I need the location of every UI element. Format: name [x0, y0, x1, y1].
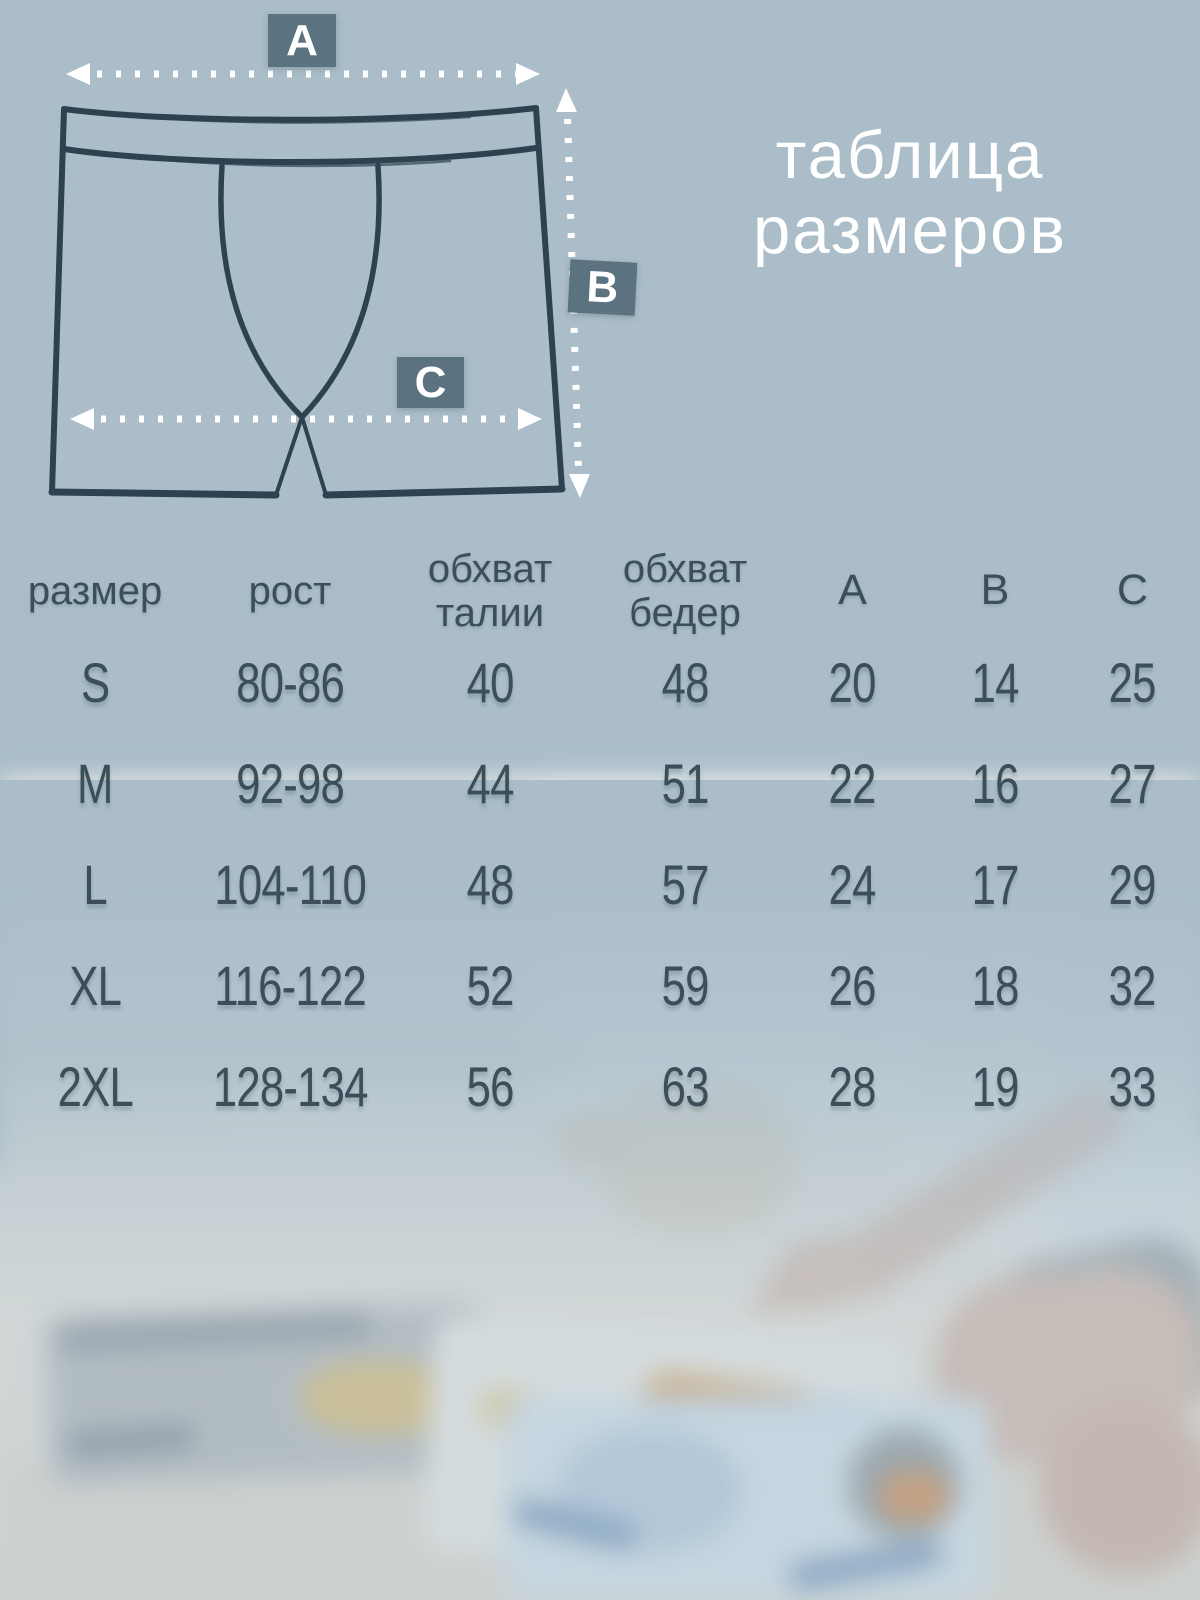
value: 63	[661, 1054, 708, 1119]
row-l-a: 24	[780, 852, 925, 917]
value: 80-86	[236, 650, 344, 715]
row-s-waist: 40	[390, 650, 590, 715]
title-line-1: таблица	[620, 118, 1200, 193]
value: 28	[829, 1054, 876, 1119]
row-m-waist: 44	[390, 751, 590, 816]
value: 59	[661, 953, 708, 1018]
row-l-b: 17	[925, 852, 1065, 917]
size-chart-infographic: A B C таблица размеров размер рост обхва…	[0, 0, 1200, 1600]
value: 92-98	[236, 751, 344, 816]
col-header-height: рост	[190, 569, 390, 613]
value: 116-122	[214, 953, 366, 1018]
col-header-size: размер	[0, 569, 190, 613]
row-m-height: 92-98	[190, 751, 390, 816]
col-header-a: A	[780, 567, 925, 614]
value: 2XL	[57, 1054, 132, 1119]
value: 57	[661, 852, 708, 917]
value: 25	[1109, 650, 1156, 715]
value: M	[77, 751, 113, 816]
value: 18	[971, 953, 1018, 1018]
row-l-hips: 57	[590, 852, 780, 917]
row-2xl-c: 33	[1065, 1054, 1200, 1119]
value: 33	[1109, 1054, 1156, 1119]
row-m-hips: 51	[590, 751, 780, 816]
row-s-b: 14	[925, 650, 1065, 715]
row-xl-waist: 52	[390, 953, 590, 1018]
value: 14	[971, 650, 1018, 715]
dimension-label-a: A	[268, 14, 336, 67]
col-header-waist-line2: талии	[390, 591, 590, 635]
row-s-height: 80-86	[190, 650, 390, 715]
row-m-size: M	[0, 751, 190, 816]
value: 19	[971, 1054, 1018, 1119]
size-table-body: S 80-86 40 48 20 14 25 M 92-98 44 51 22 …	[0, 632, 1200, 1137]
value: 22	[829, 751, 876, 816]
value: 29	[1109, 852, 1156, 917]
col-header-hips: обхват бедер	[590, 547, 780, 635]
garment-outline	[52, 108, 562, 495]
row-xl-b: 18	[925, 953, 1065, 1018]
row-xl-size: XL	[0, 953, 190, 1018]
row-xl-height: 116-122	[190, 953, 390, 1018]
row-l-size: L	[0, 852, 190, 917]
value: 52	[466, 953, 513, 1018]
row-l-c: 29	[1065, 852, 1200, 917]
title-line-2: размеров	[620, 193, 1200, 268]
value: 104-110	[214, 852, 366, 917]
dimension-letter: C	[415, 358, 447, 408]
row-2xl-a: 28	[780, 1054, 925, 1119]
value: 32	[1109, 953, 1156, 1018]
value: 27	[1109, 751, 1156, 816]
value: 24	[829, 852, 876, 917]
row-m-b: 16	[925, 751, 1065, 816]
value: 128-134	[213, 1054, 368, 1119]
dimension-label-c: C	[397, 357, 464, 408]
col-header-b: B	[925, 567, 1065, 614]
value: 48	[466, 852, 513, 917]
row-xl-c: 32	[1065, 953, 1200, 1018]
dimension-letter: A	[286, 16, 318, 66]
value: S	[81, 650, 109, 715]
row-s-hips: 48	[590, 650, 780, 715]
row-2xl-b: 19	[925, 1054, 1065, 1119]
row-2xl-hips: 63	[590, 1054, 780, 1119]
col-header-waist-line1: обхват	[390, 547, 590, 591]
value: 56	[466, 1054, 513, 1119]
value: 16	[971, 751, 1018, 816]
value: 48	[661, 650, 708, 715]
col-header-hips-line2: бедер	[590, 591, 780, 635]
arrow-c	[70, 408, 542, 430]
col-header-waist: обхват талии	[390, 547, 590, 635]
value: 44	[466, 751, 513, 816]
row-2xl-waist: 56	[390, 1054, 590, 1119]
row-s-a: 20	[780, 650, 925, 715]
row-2xl-size: 2XL	[0, 1054, 190, 1119]
value: L	[83, 852, 107, 917]
value: 20	[829, 650, 876, 715]
dimension-letter: B	[585, 262, 619, 314]
row-l-waist: 48	[390, 852, 590, 917]
row-s-size: S	[0, 650, 190, 715]
row-l-height: 104-110	[190, 852, 390, 917]
col-header-hips-line1: обхват	[590, 547, 780, 591]
row-2xl-height: 128-134	[190, 1054, 390, 1119]
row-m-a: 22	[780, 751, 925, 816]
dimension-label-b: B	[568, 259, 638, 315]
value: 40	[466, 650, 513, 715]
col-header-c: C	[1065, 567, 1200, 614]
value: 26	[829, 953, 876, 1018]
value: 51	[661, 751, 708, 816]
value: XL	[69, 953, 121, 1018]
row-m-c: 27	[1065, 751, 1200, 816]
row-xl-a: 26	[780, 953, 925, 1018]
row-s-c: 25	[1065, 650, 1200, 715]
page-title: таблица размеров	[620, 118, 1200, 268]
row-xl-hips: 59	[590, 953, 780, 1018]
value: 17	[971, 852, 1018, 917]
